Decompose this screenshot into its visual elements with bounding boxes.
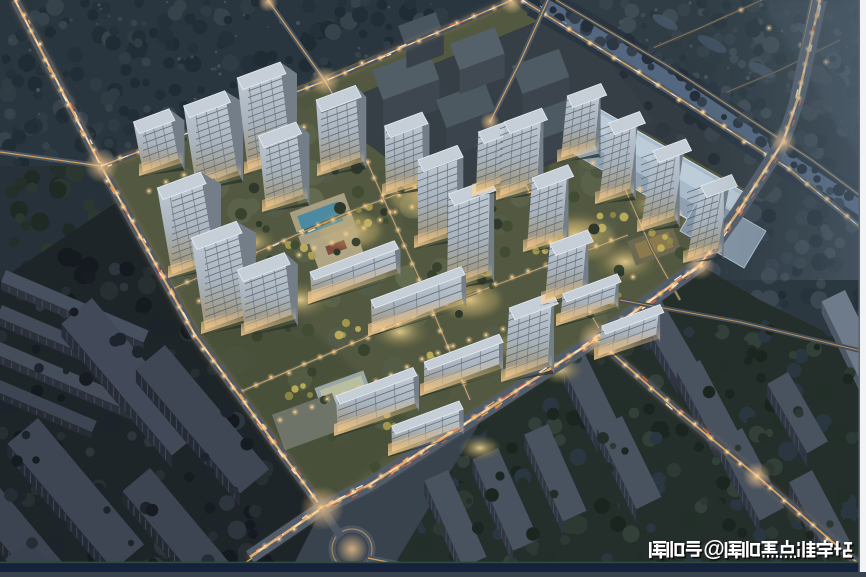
svg-text:@: @	[703, 536, 724, 561]
